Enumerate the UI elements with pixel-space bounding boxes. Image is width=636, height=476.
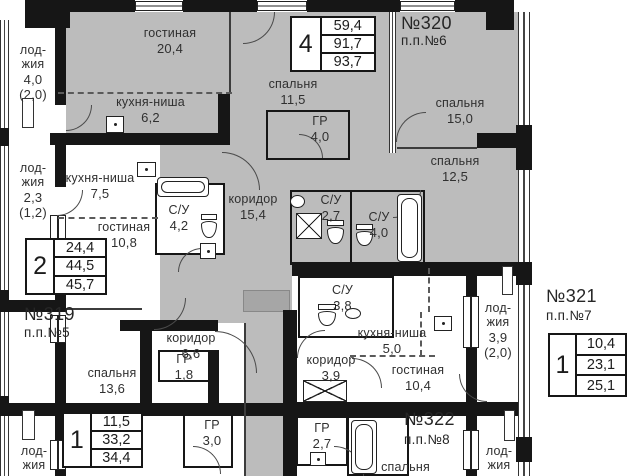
- rooms-count: 2: [27, 240, 55, 293]
- area-table-320: 4 59,4 91,7 93,7: [290, 16, 376, 72]
- wall-segment: [477, 133, 518, 148]
- wall-segment: [55, 470, 66, 476]
- room-bedroom-11-5: спальня11,5: [253, 78, 333, 107]
- window: [463, 430, 479, 470]
- radiator: [504, 410, 515, 441]
- room-kitchen-niche-321: кухня-ниша5,0: [348, 327, 436, 356]
- bathroom-sink: [310, 452, 326, 466]
- wall-segment: [183, 0, 257, 12]
- apartment-number-321: №321: [546, 286, 597, 307]
- room-living-321: гостиная10,4: [378, 364, 458, 393]
- wall-segment: [55, 343, 66, 403]
- partition-line: [66, 308, 142, 310]
- radiator: [22, 98, 34, 128]
- apartment-unit-321: п.п.№7: [546, 308, 592, 323]
- wall-segment: [307, 0, 400, 12]
- area-living: 10,4: [577, 335, 625, 356]
- room-bath-321: С/У3,8: [320, 284, 365, 313]
- area-total-full: 93,7: [322, 54, 374, 70]
- apartment-number-320: №320: [401, 13, 452, 34]
- rooms-count: 4: [292, 18, 322, 70]
- room-dressing-322: ГР2,7: [302, 422, 342, 451]
- apartment-number-319: №319: [24, 304, 75, 325]
- area-total: 91,7: [322, 36, 374, 54]
- area-table-318: 1 11,5 33,2 34,4: [62, 412, 143, 468]
- apartment-unit-319: п.п.№5: [24, 325, 70, 340]
- closet: [303, 380, 347, 402]
- room-loggia-320: лод- жия4,0(2,0): [11, 44, 55, 102]
- area-total: 44,5: [55, 258, 105, 276]
- room-corridor-320: коридор15,4: [208, 193, 298, 222]
- room-bedroom-319: спальня13,6: [72, 367, 152, 396]
- apartment-unit-322: п.п.№8: [404, 432, 450, 447]
- kitchen-niche-boundary: [58, 92, 232, 94]
- room-bedroom-15-0: спальня15,0: [420, 97, 500, 126]
- area-total: 23,1: [577, 356, 625, 377]
- kitchen-sink: [434, 316, 452, 331]
- area-table-321: 1 10,4 23,1 25,1: [548, 333, 627, 397]
- bathtub: [157, 177, 209, 197]
- wall-segment: [0, 128, 9, 146]
- room-living-320: гостиная20,4: [130, 27, 210, 56]
- room-bedroom-12-5: спальня12,5: [415, 155, 495, 184]
- rooms-count: 1: [550, 335, 577, 395]
- bathtub: [397, 194, 422, 262]
- toilet: [327, 220, 344, 244]
- area-total-full: 25,1: [577, 376, 625, 395]
- area-living: 59,4: [322, 18, 374, 36]
- wall-segment: [218, 94, 230, 145]
- wall-segment: [486, 0, 514, 30]
- partition-glass: [389, 12, 396, 153]
- area-values: 10,4 23,1 25,1: [577, 335, 625, 395]
- kitchen-niche-boundary: [58, 217, 158, 219]
- window: [463, 296, 479, 348]
- wall-segment: [70, 0, 135, 12]
- area-values: 59,4 91,7 93,7: [322, 18, 374, 70]
- apartment-unit-320: п.п.№6: [401, 33, 447, 48]
- window: [135, 1, 183, 11]
- area-total-full: 34,4: [92, 450, 141, 466]
- area-total: 33,2: [92, 432, 141, 450]
- room-living-319: гостиная10,8: [78, 221, 170, 250]
- room-bath-319: С/У4,2: [158, 204, 200, 233]
- window: [400, 1, 455, 11]
- room-loggia-319: лод- жия2,3(1,2): [11, 162, 55, 220]
- zone-boundary: [428, 268, 430, 312]
- radiator: [502, 266, 513, 295]
- room-loggia-321: лод- жия3,9(2,0): [478, 302, 518, 360]
- floor-plan: 4 59,4 91,7 93,7 2 24,4 44,5 45,7 1 11,5…: [0, 0, 636, 476]
- room-dressing-318: ГР3,0: [192, 419, 232, 448]
- door-arc: [459, 374, 487, 402]
- room-bath-2-7: С/У2,7: [308, 194, 354, 223]
- room-kitchen-niche-320: кухня-ниша6,2: [103, 96, 198, 125]
- room-loggia-318: лод- жия2,5: [12, 445, 56, 476]
- wall-segment: [283, 310, 297, 476]
- wall-segment: [0, 403, 297, 416]
- bathroom-sink: [200, 243, 216, 259]
- wall-segment: [516, 262, 532, 285]
- room-bedroom-322: спальня: [368, 461, 443, 475]
- wall-segment: [25, 0, 70, 28]
- room-dressing-320: ГР4,0: [297, 115, 343, 144]
- wall-segment: [50, 133, 230, 145]
- wall-segment: [516, 125, 532, 170]
- partition-line: [397, 147, 477, 149]
- fill-entry-block: [243, 290, 290, 312]
- room-bath-4-0: С/У4,0: [358, 211, 400, 240]
- window: [257, 1, 307, 11]
- room-corridor-321: коридор3,9: [300, 354, 362, 383]
- balcony-glazing-right: [518, 12, 530, 476]
- apartment-number-322: №322: [404, 409, 455, 430]
- partition-line: [229, 12, 231, 94]
- area-values: 11,5 33,2 34,4: [92, 414, 141, 466]
- area-living: 11,5: [92, 414, 141, 432]
- room-dressing-319: ГР1,8: [164, 353, 204, 382]
- rooms-count: 1: [64, 414, 92, 466]
- radiator: [22, 410, 35, 440]
- room-loggia-322: лод- жия2,5: [479, 445, 519, 476]
- area-total-full: 45,7: [55, 277, 105, 293]
- room-kitchen-niche-319: кухня-ниша7,5: [60, 172, 140, 201]
